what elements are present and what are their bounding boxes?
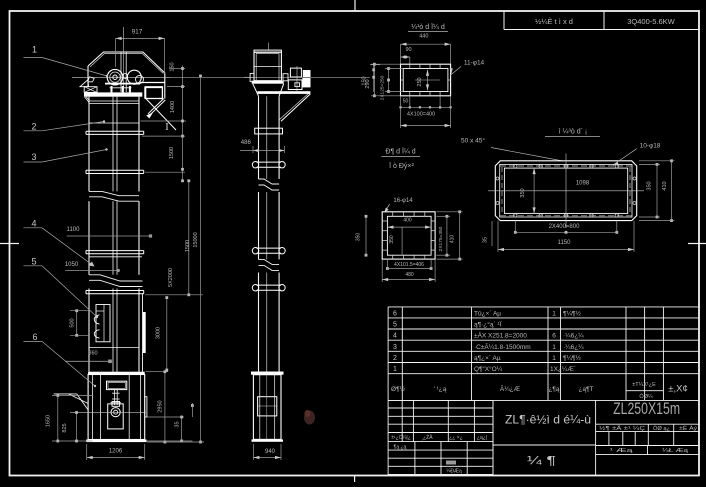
svg-text:±,X¢: ±,X¢ <box>668 384 687 395</box>
svg-text:150: 150 <box>170 62 176 71</box>
svg-text:¼ ¶: ¼ ¶ <box>527 454 556 468</box>
svg-text:2X400=800: 2X400=800 <box>549 224 581 230</box>
svg-text:¼ÐÆą: ¼ÐÆą <box>446 468 462 474</box>
svg-text:¶¼¶½: ¶¼¶½ <box>563 354 581 362</box>
svg-text:Ï ò Ðý×²: Ï ò Ðý×² <box>389 162 414 170</box>
svg-text:4: 4 <box>393 333 397 340</box>
svg-text:ÖØ ą¿: ÖØ ą¿ <box>653 425 670 432</box>
svg-text:35: 35 <box>175 421 181 427</box>
svg-text:1500: 1500 <box>169 147 175 159</box>
svg-text:¶ą ¿ą: ¶ą ¿ą <box>394 444 407 450</box>
svg-text:15000: 15000 <box>193 232 199 247</box>
svg-text:¿¶ą: ¿¶ą <box>548 386 559 393</box>
svg-text:¿ą¶T: ¿ą¶T <box>578 386 593 393</box>
svg-text:410: 410 <box>450 235 456 244</box>
svg-text:4: 4 <box>31 219 36 229</box>
svg-text:ì ¼³ò d´ ¡: ì ¼³ò d´ ¡ <box>559 129 587 136</box>
svg-text:Ø¶½: Ø¶½ <box>391 385 406 393</box>
svg-text:½¼È t ì x d: ½¼È t ì x d <box>535 17 573 26</box>
svg-text:·¼6¿¼: ·¼6¿¼ <box>563 344 584 351</box>
svg-text:1: 1 <box>552 311 556 318</box>
svg-text:ą¶·¿°ą´ ¹Ï: ą¶·¿°ą´ ¹Ï <box>474 321 502 329</box>
svg-text:½¶ ±Ă ±¹ ¼Ç: ½¶ ±Ă ±¹ ¼Ç <box>599 425 645 432</box>
svg-text:1098: 1098 <box>576 181 590 187</box>
svg-text:3000: 3000 <box>156 327 162 339</box>
svg-text:350: 350 <box>520 188 526 197</box>
svg-text:50 x 45°: 50 x 45° <box>461 137 485 145</box>
svg-text:10-φ18: 10-φ18 <box>640 143 661 150</box>
svg-text:2950: 2950 <box>158 400 164 412</box>
svg-text:Ă¼¿Æ: Ă¼¿Æ <box>500 384 521 393</box>
svg-text:¼Ł Æą: ¼Ł Æą <box>662 448 689 454</box>
svg-text:400: 400 <box>403 218 412 224</box>
svg-text:350: 350 <box>356 233 362 242</box>
svg-text:4X101.5=406: 4X101.5=406 <box>394 262 424 268</box>
svg-text:6: 6 <box>393 311 397 318</box>
svg-text:940: 940 <box>265 449 276 455</box>
svg-text:825: 825 <box>62 423 68 432</box>
svg-text:3: 3 <box>31 152 36 162</box>
svg-text:2: 2 <box>393 355 397 362</box>
svg-text:1500: 1500 <box>185 240 191 252</box>
svg-text:5: 5 <box>393 322 397 329</box>
svg-text:1100: 1100 <box>67 227 81 233</box>
svg-text:2X175=350: 2X175=350 <box>438 226 444 251</box>
svg-text:1050: 1050 <box>65 262 79 268</box>
svg-text:11-φ14: 11-φ14 <box>464 60 485 67</box>
svg-text:¹ Æą: ¹ Æą <box>610 448 635 454</box>
svg-text:1: 1 <box>552 355 556 362</box>
svg-text:500: 500 <box>70 318 76 327</box>
svg-text:±¹¿C¼|¿: ±¹¿C¼|¿ <box>391 435 411 441</box>
svg-text:350: 350 <box>389 235 395 244</box>
svg-text:Q¶“X°O¼: Q¶“X°O¼ <box>474 365 503 373</box>
svg-text:4X100=400: 4X100=400 <box>407 112 435 118</box>
svg-text:ÓØ¼: ÓØ¼ <box>639 393 653 400</box>
svg-text:6: 6 <box>32 332 37 342</box>
svg-text:480: 480 <box>405 272 414 278</box>
svg-text:917: 917 <box>132 29 143 36</box>
svg-text:350: 350 <box>647 181 653 190</box>
svg-text:2X125=250: 2X125=250 <box>380 75 386 100</box>
svg-text:Ð¶ d Ï¼ d: Ð¶ d Ï¼ d <box>385 148 415 156</box>
svg-text:410: 410 <box>662 181 668 190</box>
svg-text:ą¶¿×´ Aµ: ą¶¿×´ Aµ <box>474 355 501 362</box>
svg-text:2: 2 <box>31 122 36 132</box>
svg-text:5: 5 <box>31 256 36 266</box>
svg-text:' ¹¿ą: ' ¹¿ą <box>434 386 447 393</box>
svg-text:¿¿ ×¿: ¿¿ ×¿ <box>449 435 462 441</box>
svg-text:486: 486 <box>241 140 252 146</box>
svg-text:·C±Ă¼1.8-1500mm: ·C±Ă¼1.8-1500mm <box>474 342 531 351</box>
svg-text:3: 3 <box>393 344 397 351</box>
svg-text:860: 860 <box>88 351 97 357</box>
svg-text:1206: 1206 <box>109 449 123 455</box>
svg-text:¿ą¿|: ¿ą¿| <box>477 435 487 441</box>
svg-text:Tǔ¿×´ Aµ: Tǔ¿×´ Aµ <box>474 311 501 318</box>
svg-text:250: 250 <box>417 77 423 86</box>
svg-text:5X2000: 5X2000 <box>168 268 174 287</box>
svg-text:¶¼¶½: ¶¼¶½ <box>563 310 581 318</box>
svg-text:¼¹ò d Ï¼ d: ¼¹ò d Ï¼ d <box>411 23 445 31</box>
svg-text:I: I <box>165 122 169 133</box>
svg-text:16-φ14: 16-φ14 <box>393 198 413 204</box>
svg-text:3Q400-5.6KW: 3Q400-5.6KW <box>627 17 675 26</box>
svg-text:6: 6 <box>552 333 556 340</box>
svg-text:1150: 1150 <box>558 240 572 246</box>
svg-text:±ĂX X251.8=2000: ±ĂX X251.8=2000 <box>474 331 527 340</box>
svg-text:±È Àý: ±È Àý <box>679 425 697 432</box>
svg-text:1: 1 <box>32 45 37 55</box>
svg-text:1: 1 <box>552 344 556 351</box>
svg-text:ZL¶·ê½ì d é¼-ù: ZL¶·ê½ì d é¼-ù <box>505 413 591 427</box>
svg-text:50: 50 <box>403 99 409 105</box>
svg-text:290: 290 <box>365 79 371 88</box>
svg-text:35: 35 <box>483 237 489 243</box>
svg-text:1400: 1400 <box>170 101 176 113</box>
svg-text:1650: 1650 <box>46 415 52 427</box>
svg-text:1: 1 <box>393 366 397 373</box>
svg-text:¸¿ŹÄ: ¸¿ŹÄ <box>421 434 433 441</box>
svg-text:±T¼X¹¿E: ±T¼X¹¿E <box>632 382 656 388</box>
svg-text:1X¿¼Æ´: 1X¿¼Æ´ <box>550 366 576 373</box>
svg-text:ZL250X15m: ZL250X15m <box>613 400 680 418</box>
svg-text:90: 90 <box>405 47 411 53</box>
svg-text:440: 440 <box>419 34 428 40</box>
svg-text:·¼6¿¼: ·¼6¿¼ <box>563 333 584 340</box>
